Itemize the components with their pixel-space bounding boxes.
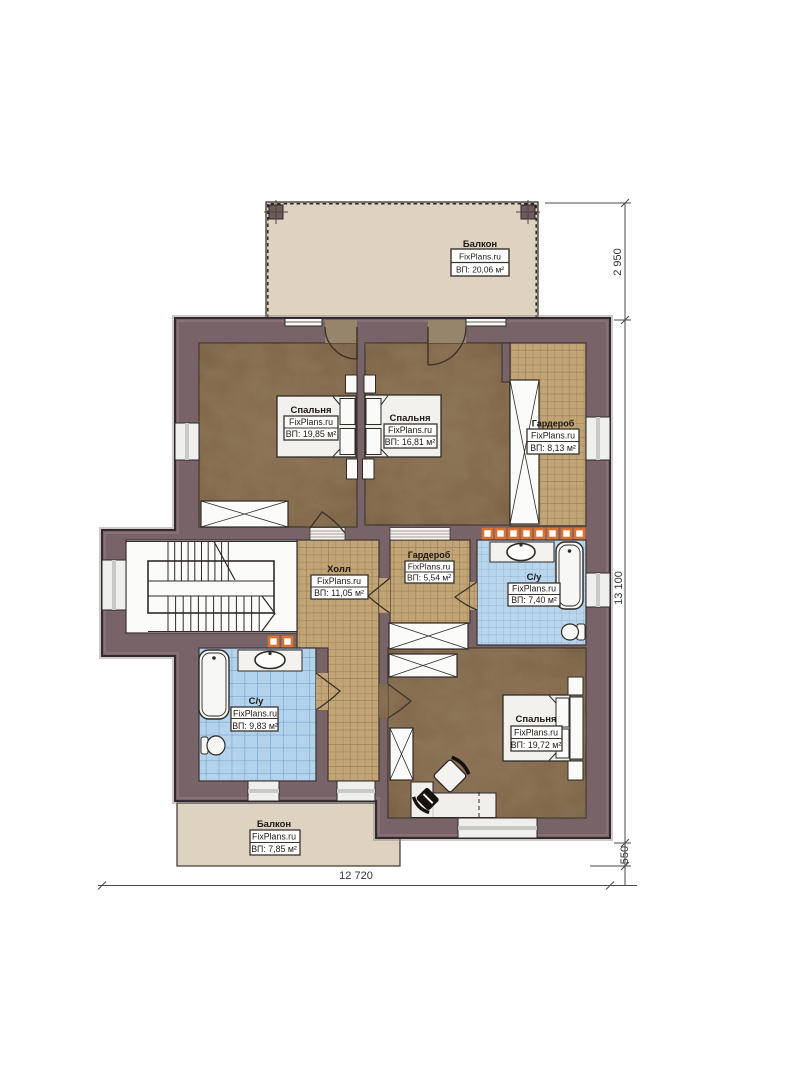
svg-text:Спальня: Спальня bbox=[389, 413, 430, 424]
svg-text:FixPlans.ru: FixPlans.ru bbox=[317, 576, 361, 586]
svg-text:ВП: 16,81 м²: ВП: 16,81 м² bbox=[385, 437, 436, 447]
svg-text:ВП: 20,06 м²: ВП: 20,06 м² bbox=[456, 265, 504, 275]
svg-text:FixPlans.ru: FixPlans.ru bbox=[388, 425, 432, 435]
svg-text:ВП: 8,13 м²: ВП: 8,13 м² bbox=[530, 443, 576, 453]
svg-text:FixPlans.ru: FixPlans.ru bbox=[512, 584, 556, 594]
svg-text:FixPlans.ru: FixPlans.ru bbox=[233, 709, 277, 719]
svg-text:550: 550 bbox=[619, 846, 631, 864]
svg-text:С/у: С/у bbox=[249, 696, 265, 707]
svg-text:FixPlans.ru: FixPlans.ru bbox=[408, 561, 451, 571]
svg-text:12 720: 12 720 bbox=[339, 870, 373, 882]
svg-text:FixPlans.ru: FixPlans.ru bbox=[459, 252, 501, 262]
svg-text:ВП: 7,40 м²: ВП: 7,40 м² bbox=[511, 595, 557, 605]
svg-text:ВП: 9,83 м²: ВП: 9,83 м² bbox=[232, 721, 278, 731]
svg-text:ВП: 19,72 м²: ВП: 19,72 м² bbox=[511, 740, 562, 750]
svg-text:Холл: Холл bbox=[327, 564, 351, 575]
svg-text:FixPlans.ru: FixPlans.ru bbox=[531, 431, 575, 441]
svg-text:FixPlans.ru: FixPlans.ru bbox=[252, 832, 296, 842]
svg-text:FixPlans.ru: FixPlans.ru bbox=[514, 728, 558, 738]
svg-text:ВП: 19,85 м²: ВП: 19,85 м² bbox=[286, 429, 337, 439]
svg-text:Гардероб: Гардероб bbox=[532, 419, 575, 429]
svg-text:FixPlans.ru: FixPlans.ru bbox=[289, 417, 333, 427]
svg-text:ВП: 11,05 м²: ВП: 11,05 м² bbox=[314, 588, 364, 598]
svg-text:Гардероб: Гардероб bbox=[408, 550, 451, 560]
svg-text:2 950: 2 950 bbox=[612, 248, 624, 276]
svg-text:Балкон: Балкон bbox=[257, 819, 292, 830]
svg-text:ВП: 5,54 м²: ВП: 5,54 м² bbox=[407, 572, 451, 582]
svg-text:С/у: С/у bbox=[527, 572, 543, 583]
svg-text:Спальня: Спальня bbox=[515, 714, 556, 725]
svg-text:ВП: 7,85 м²: ВП: 7,85 м² bbox=[251, 844, 297, 854]
svg-text:Спальня: Спальня bbox=[290, 405, 331, 416]
svg-text:13 100: 13 100 bbox=[613, 571, 625, 605]
